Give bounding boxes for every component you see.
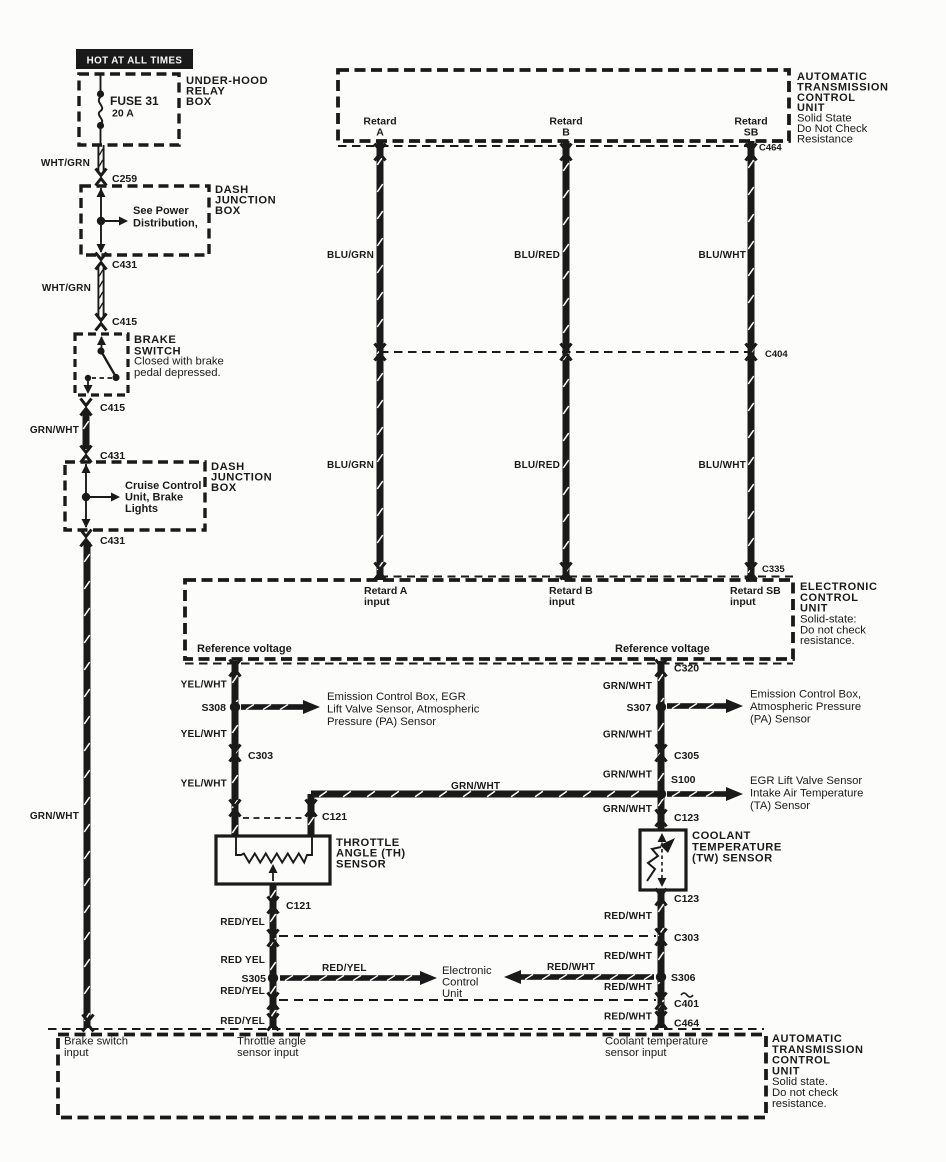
- svg-text:C121: C121: [322, 811, 347, 823]
- svg-text:FUSE 31: FUSE 31: [110, 94, 159, 108]
- svg-text:RED/YEL: RED/YEL: [220, 917, 265, 928]
- svg-text:GRN/WHT: GRN/WHT: [451, 781, 500, 792]
- svg-text:S306: S306: [671, 972, 696, 984]
- svg-text:input: input: [549, 596, 575, 608]
- svg-text:S305: S305: [241, 973, 266, 985]
- svg-text:BOX: BOX: [186, 96, 212, 108]
- svg-text:S307: S307: [626, 702, 651, 714]
- svg-text:See Power: See Power: [133, 205, 189, 217]
- svg-text:BOX: BOX: [215, 205, 241, 217]
- svg-text:GRN/WHT: GRN/WHT: [603, 804, 652, 815]
- svg-text:BLU/GRN: BLU/GRN: [327, 460, 374, 471]
- svg-text:Control: Control: [442, 977, 478, 989]
- svg-text:C303: C303: [674, 932, 699, 944]
- svg-text:Lift Valve Sensor, Atmospheric: Lift Valve Sensor, Atmospheric: [327, 704, 480, 716]
- svg-text:C431: C431: [100, 450, 125, 462]
- svg-text:GRN/WHT: GRN/WHT: [30, 811, 79, 822]
- svg-text:Coolant temperature: Coolant temperature: [605, 1036, 708, 1048]
- svg-text:sensor input: sensor input: [605, 1047, 667, 1059]
- svg-text:C431: C431: [112, 259, 137, 271]
- svg-text:S100: S100: [671, 774, 696, 786]
- svg-text:Lights: Lights: [125, 503, 158, 515]
- svg-text:C431: C431: [100, 535, 125, 547]
- svg-text:Pressure (PA) Sensor: Pressure (PA) Sensor: [327, 716, 436, 728]
- svg-text:S308: S308: [201, 702, 226, 714]
- svg-text:C320: C320: [674, 663, 699, 675]
- svg-text:EGR Lift Valve Sensor: EGR Lift Valve Sensor: [750, 775, 862, 787]
- svg-text:YEL/WHT: YEL/WHT: [181, 779, 227, 790]
- svg-text:RED/YEL: RED/YEL: [220, 986, 265, 997]
- svg-text:BLU/WHT: BLU/WHT: [699, 460, 747, 471]
- svg-text:RED/WHT: RED/WHT: [547, 962, 595, 973]
- svg-text:Electronic: Electronic: [442, 965, 492, 977]
- svg-text:RED/YEL: RED/YEL: [322, 963, 367, 974]
- svg-text:RED/WHT: RED/WHT: [604, 951, 652, 962]
- svg-text:C259: C259: [112, 173, 137, 185]
- svg-text:C123: C123: [674, 893, 699, 905]
- svg-text:(TW) SENSOR: (TW) SENSOR: [692, 853, 773, 865]
- svg-text:Brake switch: Brake switch: [64, 1036, 128, 1048]
- svg-text:BRAKE: BRAKE: [134, 334, 176, 346]
- svg-text:C415: C415: [100, 402, 125, 414]
- svg-text:Distribution,: Distribution,: [133, 218, 198, 230]
- svg-text:Atmospheric Pressure: Atmospheric Pressure: [750, 701, 861, 713]
- svg-text:BLU/WHT: BLU/WHT: [699, 250, 747, 261]
- svg-text:RED/WHT: RED/WHT: [604, 982, 652, 993]
- svg-text:HOT AT ALL TIMES: HOT AT ALL TIMES: [87, 56, 183, 67]
- svg-text:C404: C404: [765, 349, 788, 360]
- svg-text:BLU/GRN: BLU/GRN: [327, 250, 374, 261]
- svg-text:Emission Control Box,: Emission Control Box,: [750, 689, 861, 701]
- svg-text:pedal depressed.: pedal depressed.: [134, 367, 221, 379]
- svg-text:RED YEL: RED YEL: [220, 955, 265, 966]
- svg-text:BOX: BOX: [211, 482, 237, 494]
- svg-text:C123: C123: [674, 812, 699, 824]
- svg-text:YEL/WHT: YEL/WHT: [181, 729, 227, 740]
- svg-text:input: input: [64, 1047, 89, 1059]
- svg-text:C464: C464: [759, 143, 782, 154]
- svg-text:BLU/RED: BLU/RED: [514, 460, 560, 471]
- svg-text:input: input: [730, 596, 756, 608]
- svg-text:GRN/WHT: GRN/WHT: [603, 770, 652, 781]
- svg-text:RED/YEL: RED/YEL: [220, 1016, 265, 1027]
- svg-text:C121: C121: [286, 900, 311, 912]
- svg-text:RED/WHT: RED/WHT: [604, 911, 652, 922]
- svg-text:C335: C335: [762, 564, 785, 575]
- svg-text:Cruise Control: Cruise Control: [125, 480, 201, 492]
- svg-text:C464: C464: [674, 1018, 699, 1030]
- svg-text:GRN/WHT: GRN/WHT: [603, 730, 652, 741]
- svg-text:GRN/WHT: GRN/WHT: [603, 681, 652, 692]
- svg-text:(PA) Sensor: (PA) Sensor: [750, 714, 811, 726]
- svg-text:Resistance: Resistance: [797, 133, 853, 145]
- svg-text:COOLANT: COOLANT: [692, 830, 751, 842]
- svg-text:Emission Control Box, EGR: Emission Control Box, EGR: [327, 691, 466, 703]
- svg-text:resistance.: resistance.: [772, 1098, 827, 1110]
- svg-text:WHT/GRN: WHT/GRN: [41, 158, 90, 169]
- svg-text:BLU/RED: BLU/RED: [514, 250, 560, 261]
- svg-text:C305: C305: [674, 750, 699, 762]
- svg-text:Unit: Unit: [442, 988, 463, 1000]
- svg-text:(TA) Sensor: (TA) Sensor: [750, 800, 810, 812]
- svg-text:C303: C303: [248, 750, 273, 762]
- svg-text:20 A: 20 A: [112, 108, 134, 120]
- svg-text:SENSOR: SENSOR: [336, 858, 386, 870]
- svg-text:Throttle angle: Throttle angle: [237, 1036, 306, 1048]
- svg-text:B: B: [562, 127, 570, 139]
- svg-text:GRN/WHT: GRN/WHT: [30, 425, 79, 436]
- svg-text:Closed with brake: Closed with brake: [134, 356, 224, 368]
- svg-text:input: input: [364, 596, 390, 608]
- svg-text:Intake Air Temperature: Intake Air Temperature: [750, 788, 863, 800]
- svg-text:C415: C415: [112, 316, 137, 328]
- svg-text:sensor input: sensor input: [237, 1047, 299, 1059]
- svg-text:YEL/WHT: YEL/WHT: [181, 680, 227, 691]
- svg-text:Reference voltage: Reference voltage: [197, 643, 292, 655]
- svg-text:A: A: [376, 127, 384, 139]
- svg-text:SB: SB: [744, 127, 759, 139]
- svg-text:WHT/GRN: WHT/GRN: [42, 283, 91, 294]
- svg-text:Unit, Brake: Unit, Brake: [125, 492, 183, 504]
- svg-text:TEMPERATURE: TEMPERATURE: [692, 841, 782, 853]
- svg-text:Reference voltage: Reference voltage: [615, 643, 710, 655]
- svg-text:resistance.: resistance.: [800, 635, 855, 647]
- svg-text:RED/WHT: RED/WHT: [604, 1012, 652, 1023]
- svg-text:C401: C401: [674, 998, 699, 1010]
